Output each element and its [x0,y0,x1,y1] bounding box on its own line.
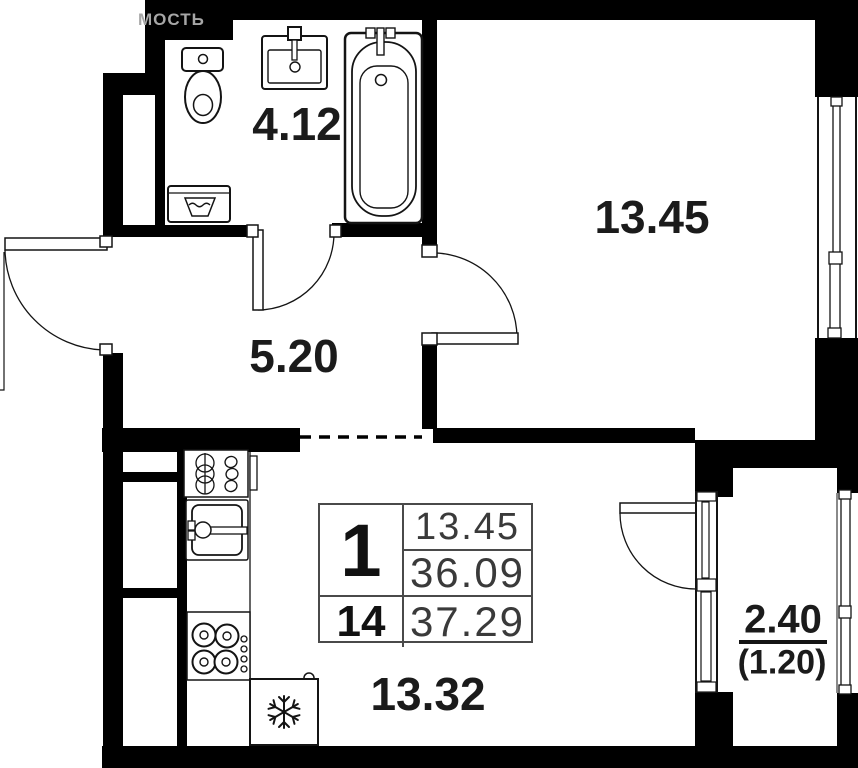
area-without-summer-cell: 36.09 [404,551,531,595]
exterior-outline [0,252,4,390]
balcony-secondary-area-label: (1.20) [738,644,827,683]
balcony-area-label: 2.40 [744,598,822,643]
bathroom-door-icon [247,225,341,310]
living-area-cell: 13.45 [404,505,531,551]
fixtures-layer [0,0,858,768]
kitchen-area-label: 13.32 [370,667,485,721]
floor-cell: 14 [320,595,404,647]
balcony-door-icon [620,503,697,589]
toilet-icon [182,48,223,123]
apartment-info-table: 1 13.45 36.09 14 37.29 [318,503,533,643]
bathroom-sink-icon [262,27,327,89]
bathtub-icon [345,28,422,223]
bedroom-door-icon [422,245,518,345]
bedroom-area-label: 13.45 [594,190,709,244]
washing-machine-icon [168,186,230,222]
bathroom-area-label: 4.12 [252,97,342,151]
rooms-count-cell: 1 [320,505,404,595]
fridge-snowflake-icon [250,673,318,745]
hallway-area-label: 5.20 [249,329,339,383]
watermark: МОСТЬ [138,10,205,30]
floor-plan: МОСТЬ 4.12 5.20 13.45 13.32 2.40 (1.20) … [0,0,858,768]
balcony-door-window-frame [696,492,717,692]
stove-icon [187,612,250,680]
kitchen-counter-unit-icon [184,450,257,497]
entrance-door-icon [5,236,112,355]
kitchen-sink-icon [186,500,248,560]
balcony-window [837,490,851,694]
bedroom-window [818,97,856,338]
total-area-cell: 37.29 [404,595,531,647]
